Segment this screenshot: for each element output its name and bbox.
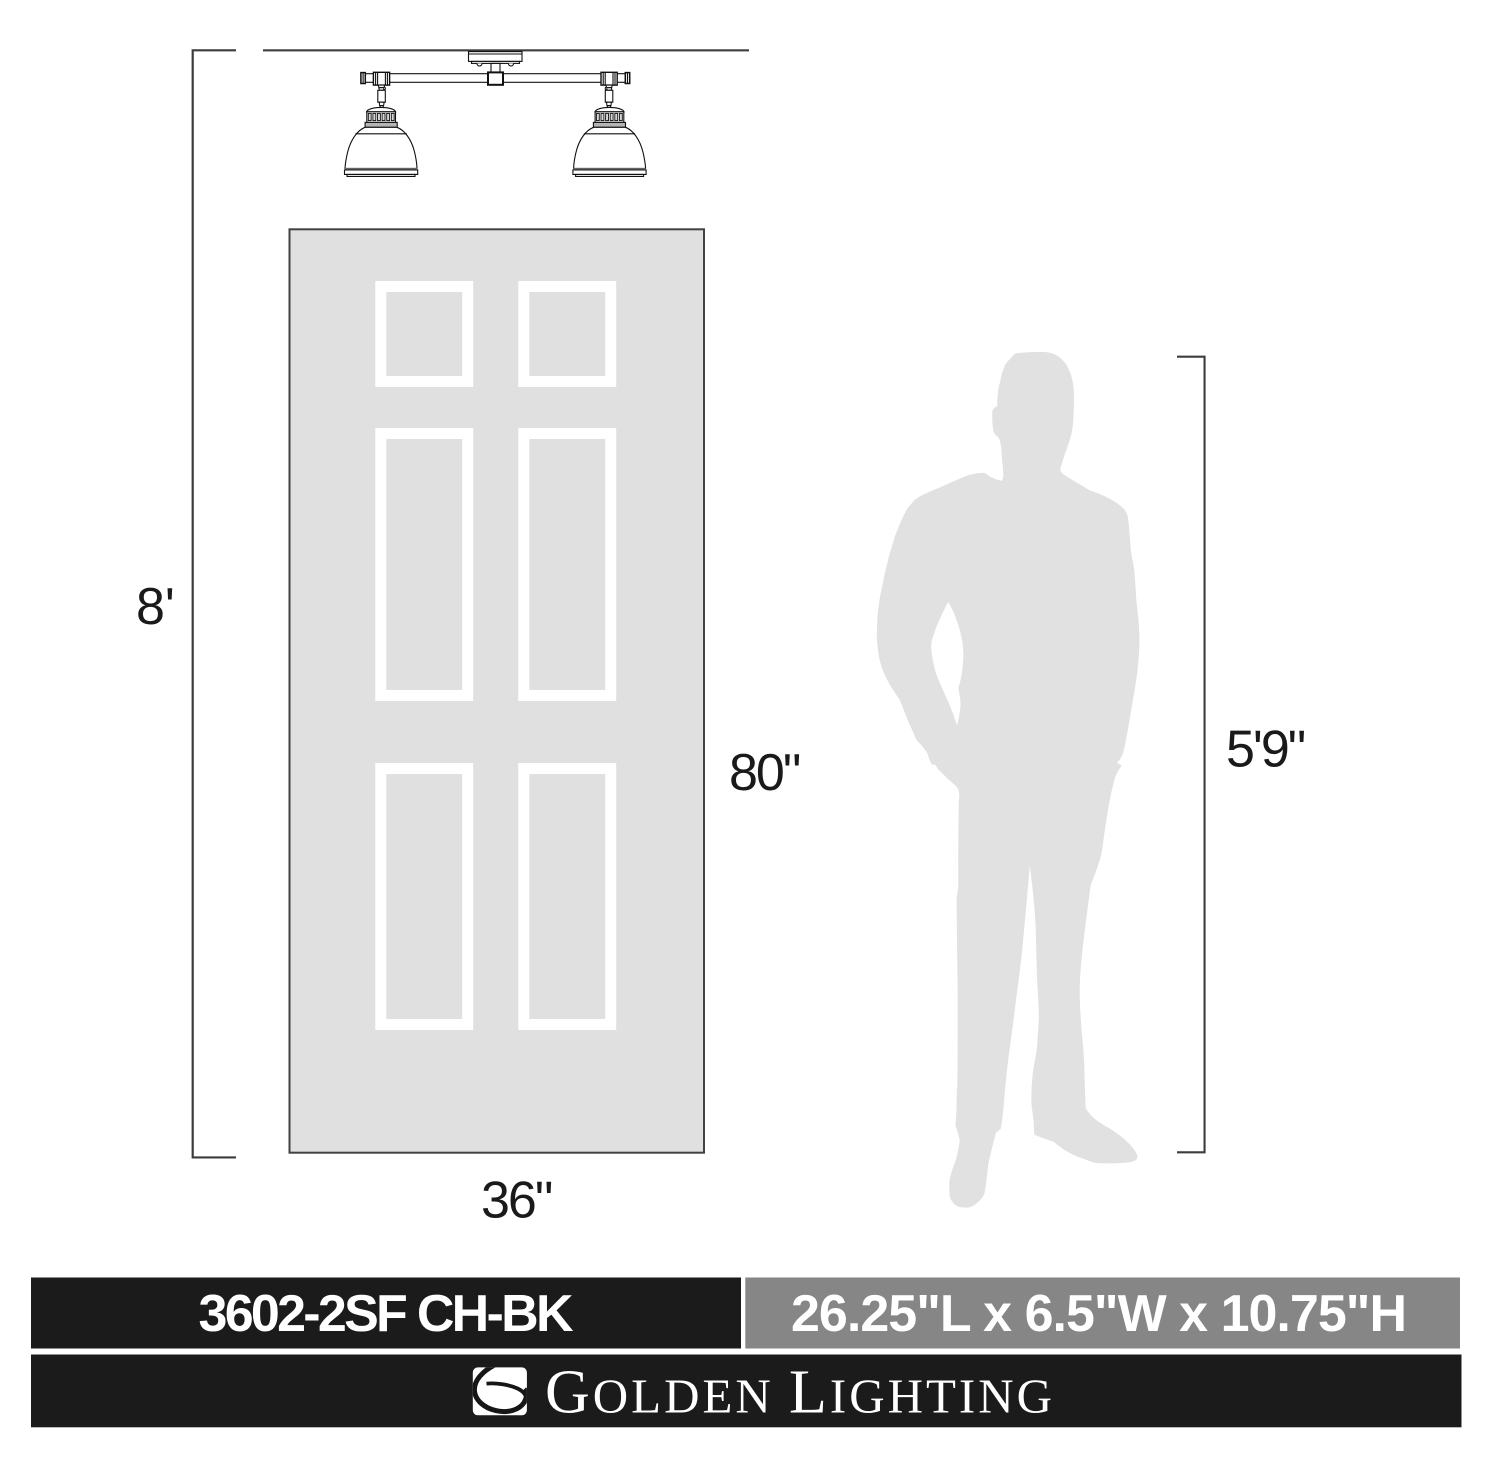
svg-text:26.25"L x 6.5"W x 10.75"H: 26.25"L x 6.5"W x 10.75"H <box>791 1285 1407 1343</box>
svg-text:80": 80" <box>729 744 800 802</box>
svg-text:3602-2SF CH-BK: 3602-2SF CH-BK <box>199 1285 574 1343</box>
svg-text:36": 36" <box>481 1172 552 1230</box>
svg-text:8': 8' <box>136 578 175 636</box>
svg-text:5'9": 5'9" <box>1226 721 1305 779</box>
